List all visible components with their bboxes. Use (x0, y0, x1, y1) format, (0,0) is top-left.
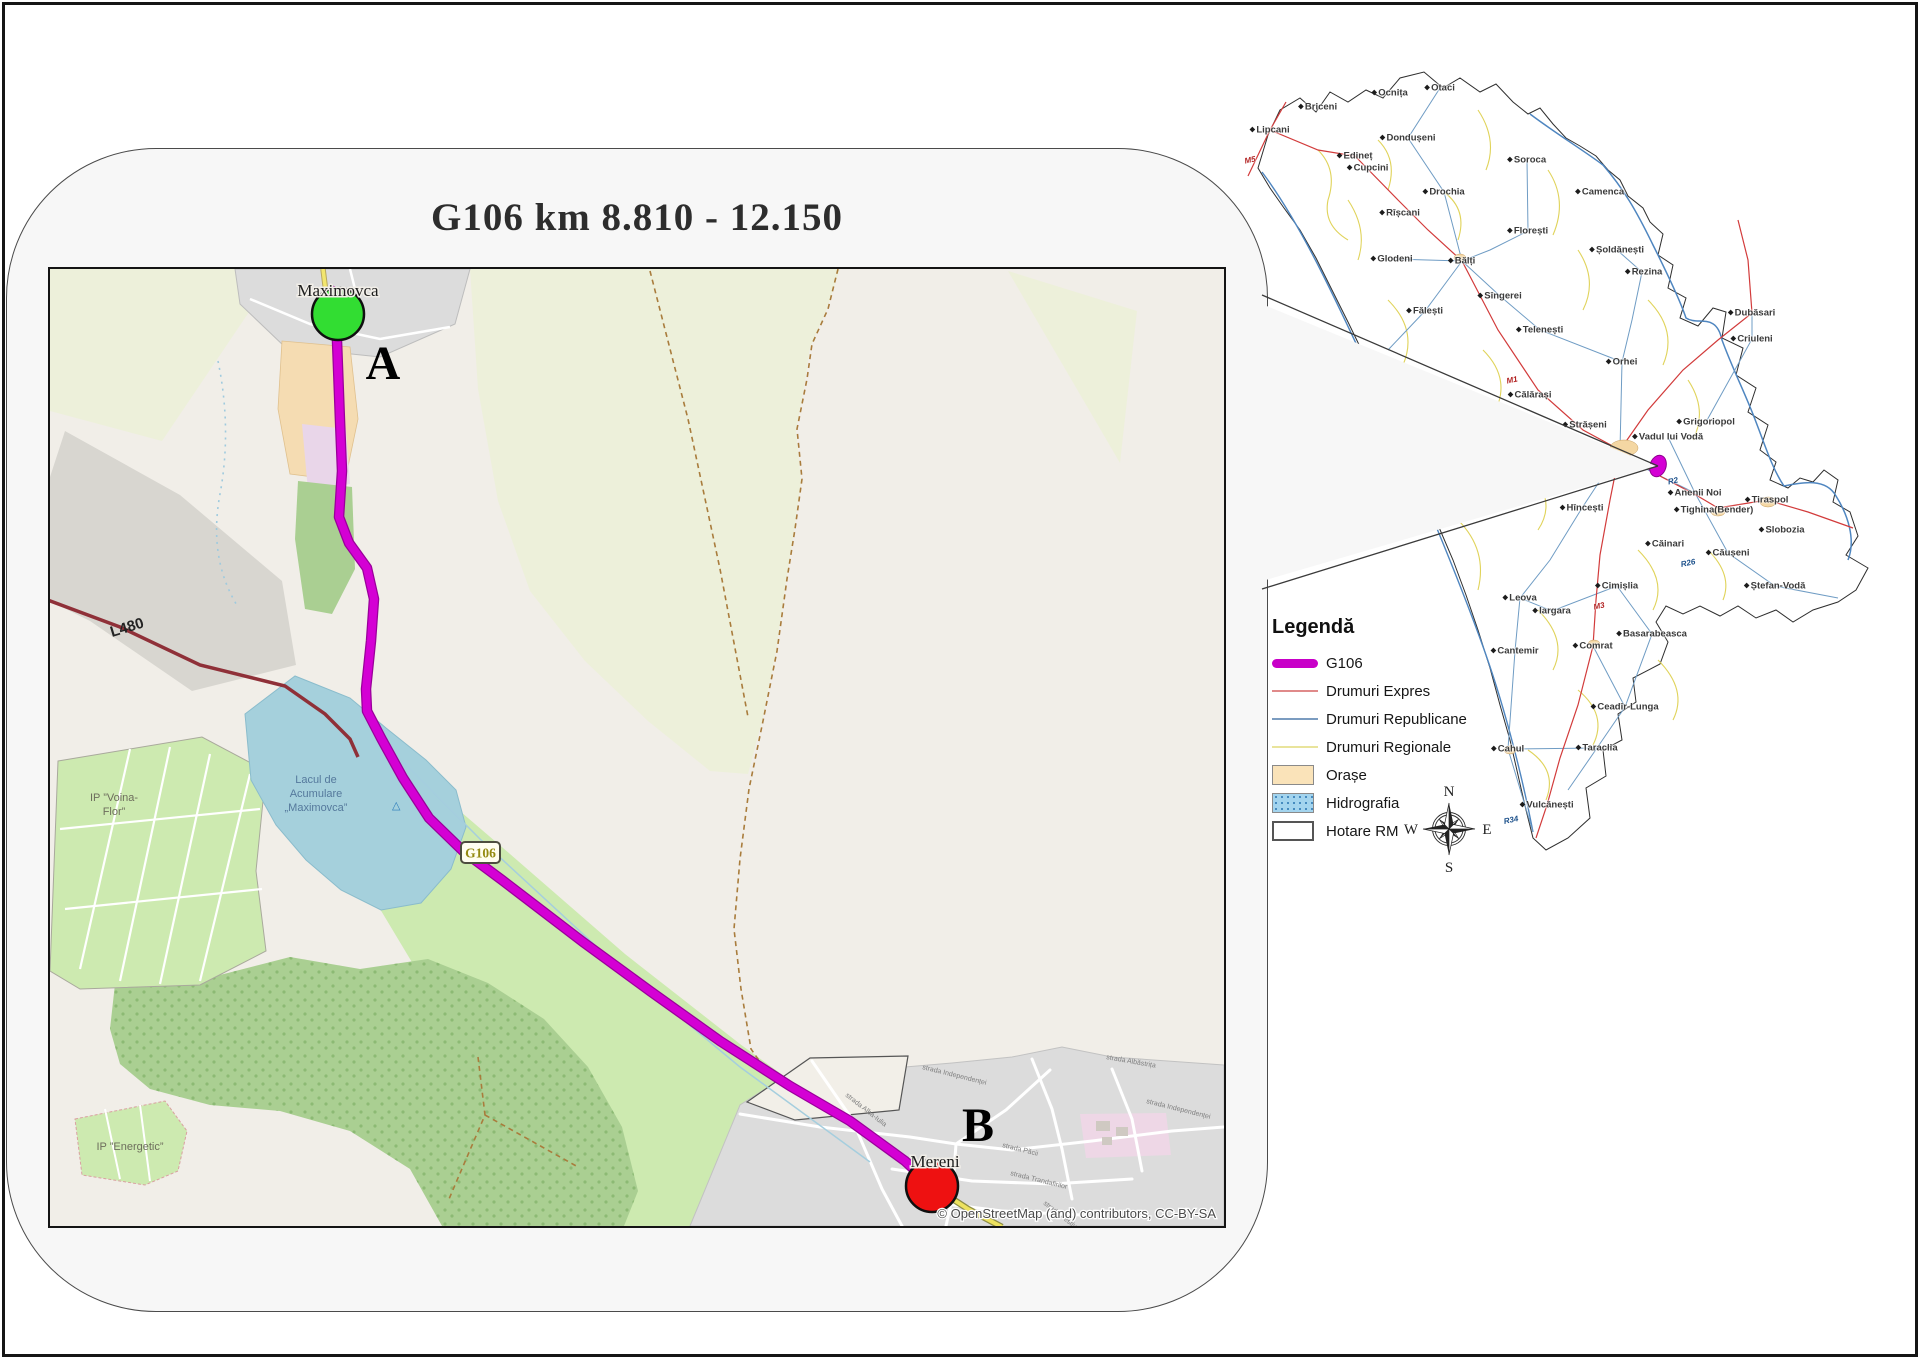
svg-text:Flor”: Flor” (103, 806, 126, 818)
compass-w: W (1404, 822, 1419, 838)
overview-road-label: R26 (1680, 557, 1696, 569)
overview-road-label: M1 (1506, 374, 1519, 385)
main-map-canvas: strada Alba-Iulia strada Independenței s… (50, 269, 1224, 1226)
g106-line-swatch (1272, 659, 1318, 668)
camp-icon: △ (392, 800, 401, 812)
hotare-box-swatch (1272, 821, 1314, 841)
compass-rose: N E S W (1403, 783, 1495, 875)
compass-s: S (1445, 860, 1453, 875)
compass-e: E (1482, 822, 1491, 838)
g106-shield: G106 (461, 842, 500, 863)
regional-line-swatch (1272, 746, 1318, 748)
legend-item-drumuri-regionale: Drumuri Regionale (1266, 733, 1516, 761)
svg-text:IP ”Voina-: IP ”Voina- (90, 792, 138, 804)
page-title: G106 km 8.810 - 12.150 (7, 195, 1267, 240)
overview-road-label: M5 (1244, 154, 1257, 165)
svg-text:G106: G106 (465, 846, 496, 861)
point-b-label: B (962, 1099, 994, 1152)
svg-text:Lacul de: Lacul de (295, 774, 337, 786)
map-card: G106 km 8.810 - 12.150 (6, 148, 1268, 1312)
compass-n: N (1444, 784, 1455, 800)
republican-line-swatch (1272, 718, 1318, 720)
overview-road-label: M3 (1593, 600, 1606, 611)
legend-item-drumuri-expres: Drumuri Expres (1266, 677, 1516, 705)
legend-item-g106: G106 (1266, 649, 1516, 677)
legend-title: Legendă (1272, 616, 1516, 639)
legend-item-drumuri-republicane: Drumuri Republicane (1266, 705, 1516, 733)
attribution: © OpenStreetMap (and) contributors, CC-B… (937, 1206, 1216, 1221)
svg-text:Acumulare: Acumulare (290, 788, 343, 800)
maximovca-label: Maximovca (297, 281, 379, 300)
hidrografia-box-swatch (1272, 793, 1314, 813)
svg-text:IP ”Energetic”: IP ”Energetic” (96, 1141, 163, 1153)
allotment-voina-flor (50, 737, 266, 989)
svg-text:„Maximovca”: „Maximovca” (285, 802, 348, 814)
mereni-label: Mereni (910, 1152, 959, 1171)
page: LipcaniBriceniOcnițaOtaciDondușeniEdineț… (0, 0, 1920, 1359)
compass-cardinal-points (1423, 803, 1475, 855)
main-map: strada Alba-Iulia strada Independenței s… (48, 267, 1226, 1228)
overview-road-label: R2 (1667, 476, 1679, 487)
orase-box-swatch (1272, 765, 1314, 785)
express-line-swatch (1272, 690, 1318, 692)
point-a-label: A (366, 337, 401, 390)
